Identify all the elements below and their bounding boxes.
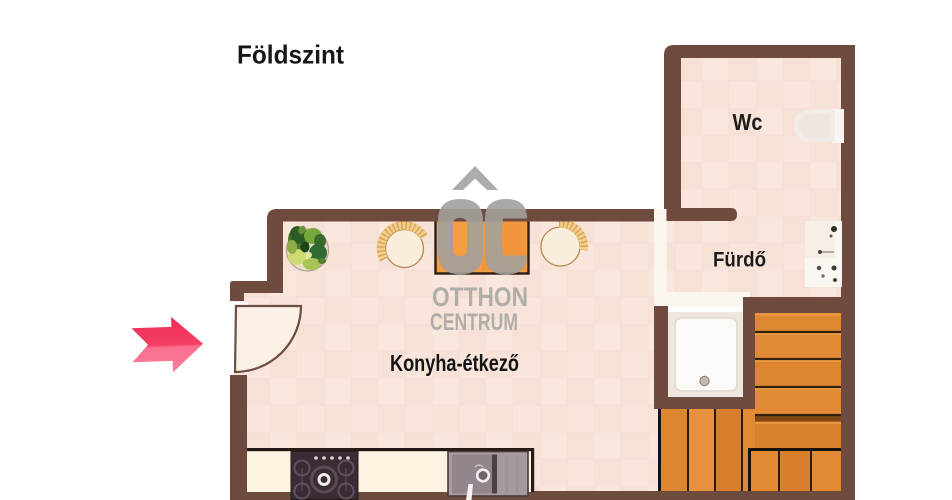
svg-text:Fürdő: Fürdő	[713, 249, 766, 272]
svg-text:Wc: Wc	[733, 109, 763, 135]
svg-text:CENTRUM: CENTRUM	[430, 309, 518, 336]
svg-text:Konyha-étkező: Konyha-étkező	[390, 350, 519, 376]
svg-text:OTTHON: OTTHON	[432, 282, 528, 312]
svg-text:Földszint: Földszint	[237, 40, 344, 70]
